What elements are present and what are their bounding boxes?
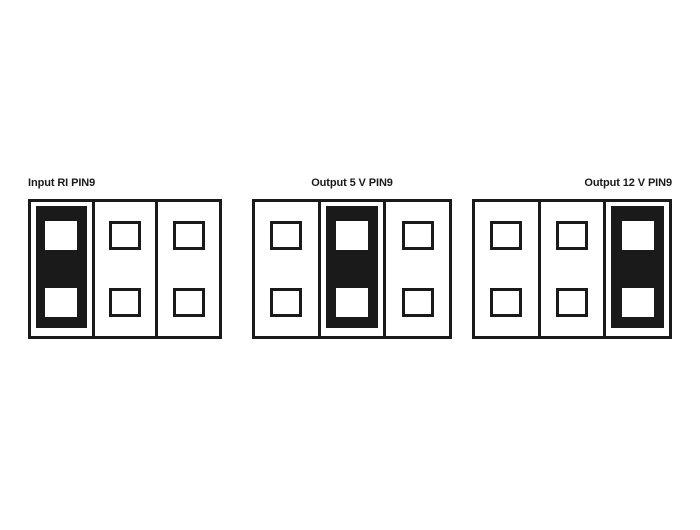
pin-pad-bottom (402, 288, 434, 317)
jumper-column-2 (92, 202, 156, 336)
pin-pad-top (336, 221, 368, 250)
pin-pad-top (556, 221, 588, 250)
page: { "colors": { "ink": "#1a1a1a", "paper":… (0, 0, 700, 530)
pin-pad-bottom (490, 288, 522, 317)
pin-pad-top (270, 221, 302, 250)
jumper-column-3 (603, 202, 669, 336)
jumper-block (28, 199, 222, 339)
pin-pad-bottom (622, 288, 654, 317)
diagram-title: Output 12 V PIN9 (472, 177, 672, 190)
jumper-column-3 (155, 202, 219, 336)
pin-pad-top (45, 221, 77, 250)
jumper-column-3 (383, 202, 449, 336)
pin-pad-bottom (270, 288, 302, 317)
jumper-column-2 (318, 202, 384, 336)
pin-pad-bottom (556, 288, 588, 317)
jumper-diagram-output-12v: Output 12 V PIN9 (472, 177, 672, 339)
jumper-column-1 (31, 202, 92, 336)
jumper-column-1 (475, 202, 538, 336)
pin-pad-top (173, 221, 205, 250)
diagram-title: Output 5 V PIN9 (252, 177, 452, 190)
jumper-diagram-input-ri: Input RI PIN9 (28, 177, 222, 339)
jumper-column-1 (255, 202, 318, 336)
diagram-title: Input RI PIN9 (28, 177, 222, 190)
pin-pad-top (402, 221, 434, 250)
pin-pad-top (490, 221, 522, 250)
jumper-block (472, 199, 672, 339)
pin-pad-bottom (336, 288, 368, 317)
jumper-block (252, 199, 452, 339)
pin-pad-top (622, 221, 654, 250)
jumper-diagram-output-5v: Output 5 V PIN9 (252, 177, 452, 339)
pin-pad-bottom (109, 288, 141, 317)
jumper-column-2 (538, 202, 604, 336)
pin-pad-top (109, 221, 141, 250)
pin-pad-bottom (173, 288, 205, 317)
pin-pad-bottom (45, 288, 77, 317)
